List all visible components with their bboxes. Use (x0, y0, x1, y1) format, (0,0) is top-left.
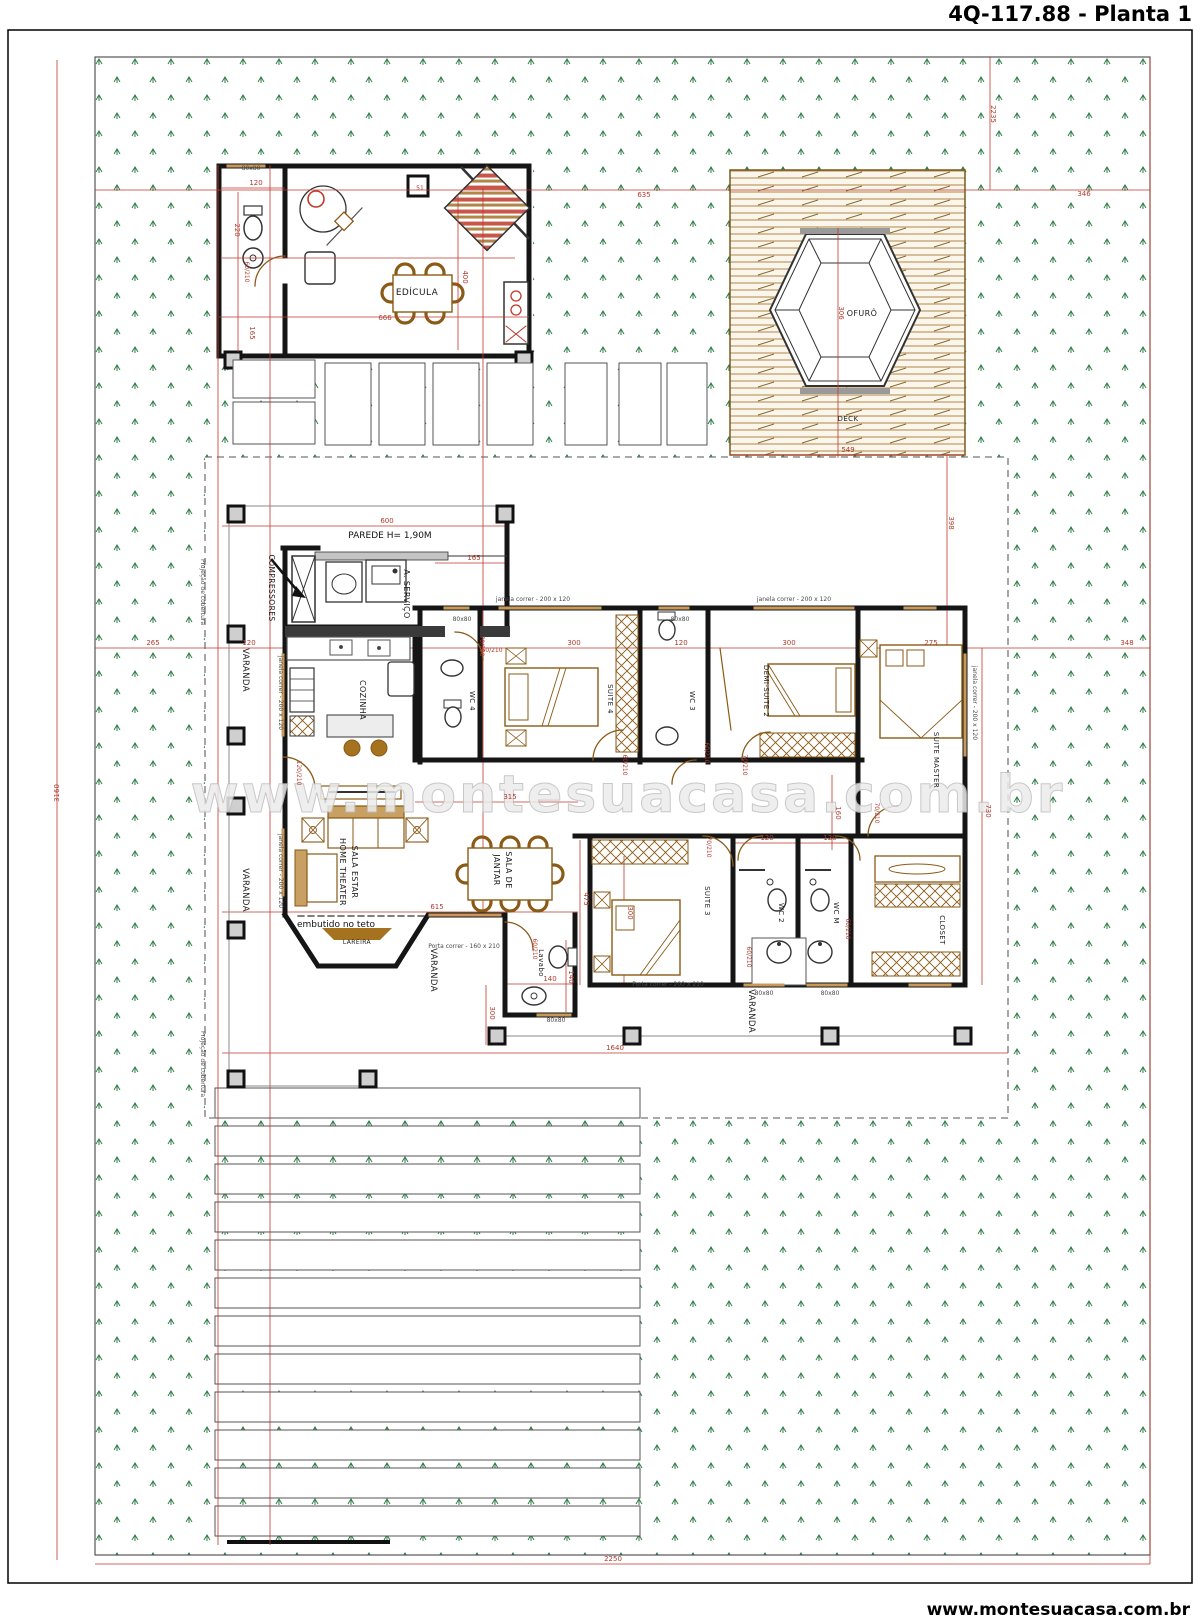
wardrobe (875, 884, 960, 907)
label-closet: CLOSET (938, 915, 946, 945)
fridge (388, 662, 414, 696)
plan-label: 615 (430, 903, 443, 911)
plan-label: 70/210 (873, 802, 880, 823)
label-wc2: WC 2 (777, 903, 785, 923)
plan-label: 730 (984, 804, 992, 817)
label-sala-de-jantar: SALA DE (504, 851, 513, 888)
plan-label: 165 (467, 554, 480, 562)
plan-label: 398 (947, 516, 955, 529)
stool (344, 740, 360, 756)
floor-plan-drawing: www.montesuacasa.com.br EDÍCULACOMPRESSO… (0, 0, 1200, 1622)
plan-label: 70/210 (705, 836, 712, 857)
plan-label: 120 (249, 179, 262, 187)
plan-label: 315 (503, 793, 516, 801)
plan-label: 60/210 (481, 647, 502, 654)
plan-label: 165 (248, 326, 256, 339)
service-wall (285, 626, 445, 637)
plan-label: 3160 (53, 784, 61, 802)
low-wall (315, 552, 448, 560)
label-area-servico: A. SERVIÇO (402, 569, 411, 618)
label-wc4: WC 4 (468, 691, 476, 711)
plan-label: 51 (416, 185, 424, 192)
plan-label: janela correr - 200 x 120 (971, 665, 978, 740)
stool (371, 740, 387, 756)
laundry-appliances (326, 560, 406, 602)
armchair (307, 854, 337, 902)
label-wcm: WC M (832, 902, 840, 924)
label-lareira: LAREIRA (343, 939, 372, 946)
plan-label: 220 (233, 223, 241, 236)
label-varanda-3: VARANDA (428, 948, 438, 992)
plan-label: 60/210 (621, 754, 628, 775)
label-compressores: COMPRESSORES (267, 554, 276, 621)
wardrobe (872, 952, 960, 976)
plan-label: 80x80 (453, 616, 472, 623)
plan-label: 60/210 (243, 261, 250, 282)
plan-label: 80x80 (547, 1017, 566, 1024)
label-suite-master: SUITE MASTER (932, 732, 940, 788)
plan-label: 300 (567, 639, 580, 647)
label-suite3: SUITE 3 (703, 886, 711, 916)
plan-label: janela correr - 200 x 120 (756, 596, 831, 603)
plan-label: 1640 (606, 1044, 624, 1052)
plan-label: 348 (1120, 639, 1133, 647)
plan-label: 265 (146, 639, 159, 647)
label-projecao-1: Projeção de cobertura (199, 559, 206, 625)
plan-label: janela correr - 200 x 120 (277, 655, 284, 730)
label-embutido: embutido no teto (297, 920, 375, 930)
plan-label: 306 (837, 306, 845, 320)
armchair (305, 252, 335, 284)
edicula (219, 166, 532, 368)
plan-label: 60/210 (844, 918, 851, 939)
label-deck: DECK (838, 415, 859, 423)
label-home-theater: HOME THEATER (338, 838, 347, 906)
plan-label: 60/210 (703, 742, 710, 763)
plan-label: 120 (823, 834, 836, 842)
wardrobe (592, 840, 688, 864)
label-sala-estar: SALA ESTAR (350, 846, 359, 899)
label-edicula: EDÍCULA (396, 286, 439, 298)
plan-label: Porta correr - 160 x 210 (428, 943, 500, 950)
label-ofuro: OFURÔ (847, 307, 878, 318)
plan-label: janela correr - 200 x 120 (495, 596, 570, 603)
label-jantar: JANTAR (492, 853, 501, 885)
label-demi-suite2: DEMI-SUITE 2 (762, 665, 770, 717)
label-wc3: WC 3 (688, 691, 696, 711)
plan-label: 60/210 (745, 946, 752, 967)
plan-label: janela correr - 200 x 120 (277, 833, 284, 908)
plan-label: 300 (488, 1006, 496, 1019)
paving-slabs (233, 360, 707, 445)
plan-label: 346 (1077, 190, 1091, 198)
plan-label: 475 (582, 892, 590, 905)
plan-label: 120/210 (295, 761, 302, 786)
plan-label: 300 (626, 906, 634, 919)
plan-label: 300 (782, 639, 795, 647)
plan-label: 600 (380, 517, 393, 525)
plan-label: 635 (637, 191, 650, 199)
plan-label: 400 (461, 270, 469, 283)
plan-label: 140 (567, 970, 575, 983)
wardrobe (616, 615, 638, 752)
plan-label: 549 (841, 446, 854, 454)
plan-label: 2250 (604, 1555, 622, 1563)
plan-label: 275 (924, 639, 937, 647)
label-parede-nota: PAREDE H= 1,90M (348, 531, 431, 541)
page-title: 4Q-117.88 - Planta 1 (948, 2, 1192, 26)
edicula-counter (504, 282, 528, 344)
plan-label: 70/210 (741, 754, 748, 775)
plan-label: 60/210 (531, 938, 538, 959)
plan-label: 80x80 (821, 990, 840, 997)
footer-website: www.montesuacasa.com.br (927, 1600, 1190, 1620)
label-projecao-2: Projeção de cobertura (199, 1031, 206, 1097)
wardrobe (760, 733, 855, 757)
label-varanda-2: VARANDA (240, 868, 250, 912)
plan-label: 2235 (989, 105, 997, 123)
label-suite4: SUITE 4 (606, 684, 614, 714)
plan-label: 160 (834, 806, 842, 819)
plan-label: 120 (760, 834, 773, 842)
edicula-wc-toilet (244, 206, 262, 240)
floor-plan-page: 4Q-117.88 - Planta 1 (0, 0, 1200, 1622)
plan-label: 120 (242, 639, 255, 647)
label-varanda-1: VARANDA (240, 648, 250, 692)
plan-label: 120 (674, 639, 687, 647)
label-cozinha: COZINHA (358, 680, 367, 720)
plan-label: 80x80 (671, 616, 690, 623)
plan-label: 140 (543, 975, 556, 983)
plan-label: 80x80 (242, 165, 261, 172)
plan-label: Porta correr - 200 x 210 (632, 981, 704, 988)
plan-label: 666 (378, 314, 392, 322)
plan-label: 80x80 (755, 990, 774, 997)
